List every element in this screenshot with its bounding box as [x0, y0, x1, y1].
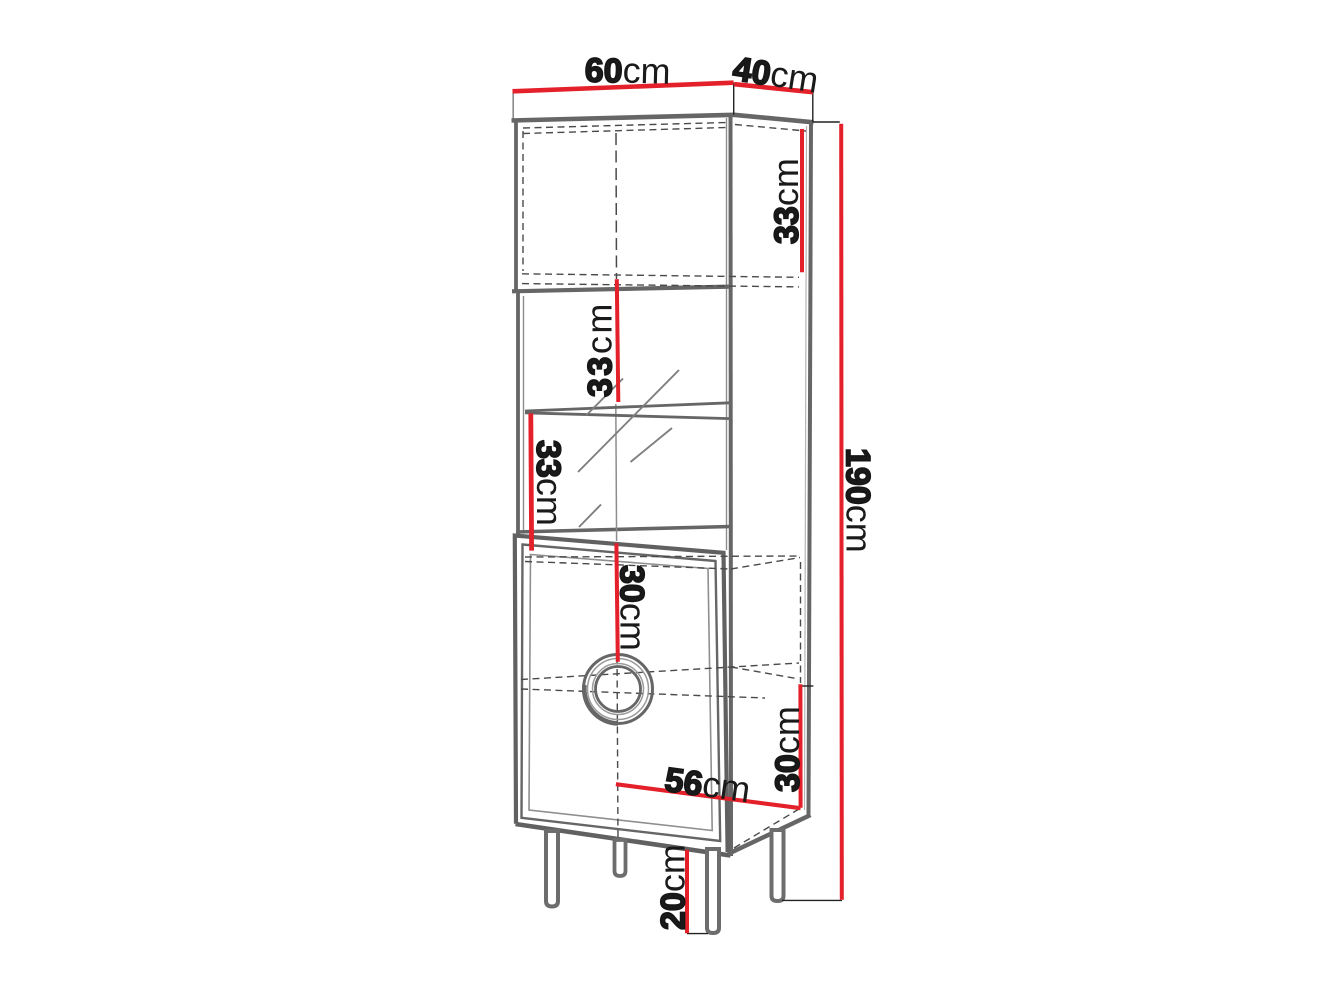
- svg-text:33cm: 33cm: [765, 158, 806, 244]
- svg-text:60cm: 60cm: [584, 49, 671, 92]
- svg-text:33cm: 33cm: [529, 440, 570, 526]
- svg-text:20cm: 20cm: [652, 844, 693, 930]
- svg-text:30cm: 30cm: [766, 706, 807, 792]
- svg-text:33cm: 33cm: [579, 301, 620, 397]
- svg-text:30cm: 30cm: [613, 565, 654, 651]
- svg-text:190cm: 190cm: [839, 448, 880, 553]
